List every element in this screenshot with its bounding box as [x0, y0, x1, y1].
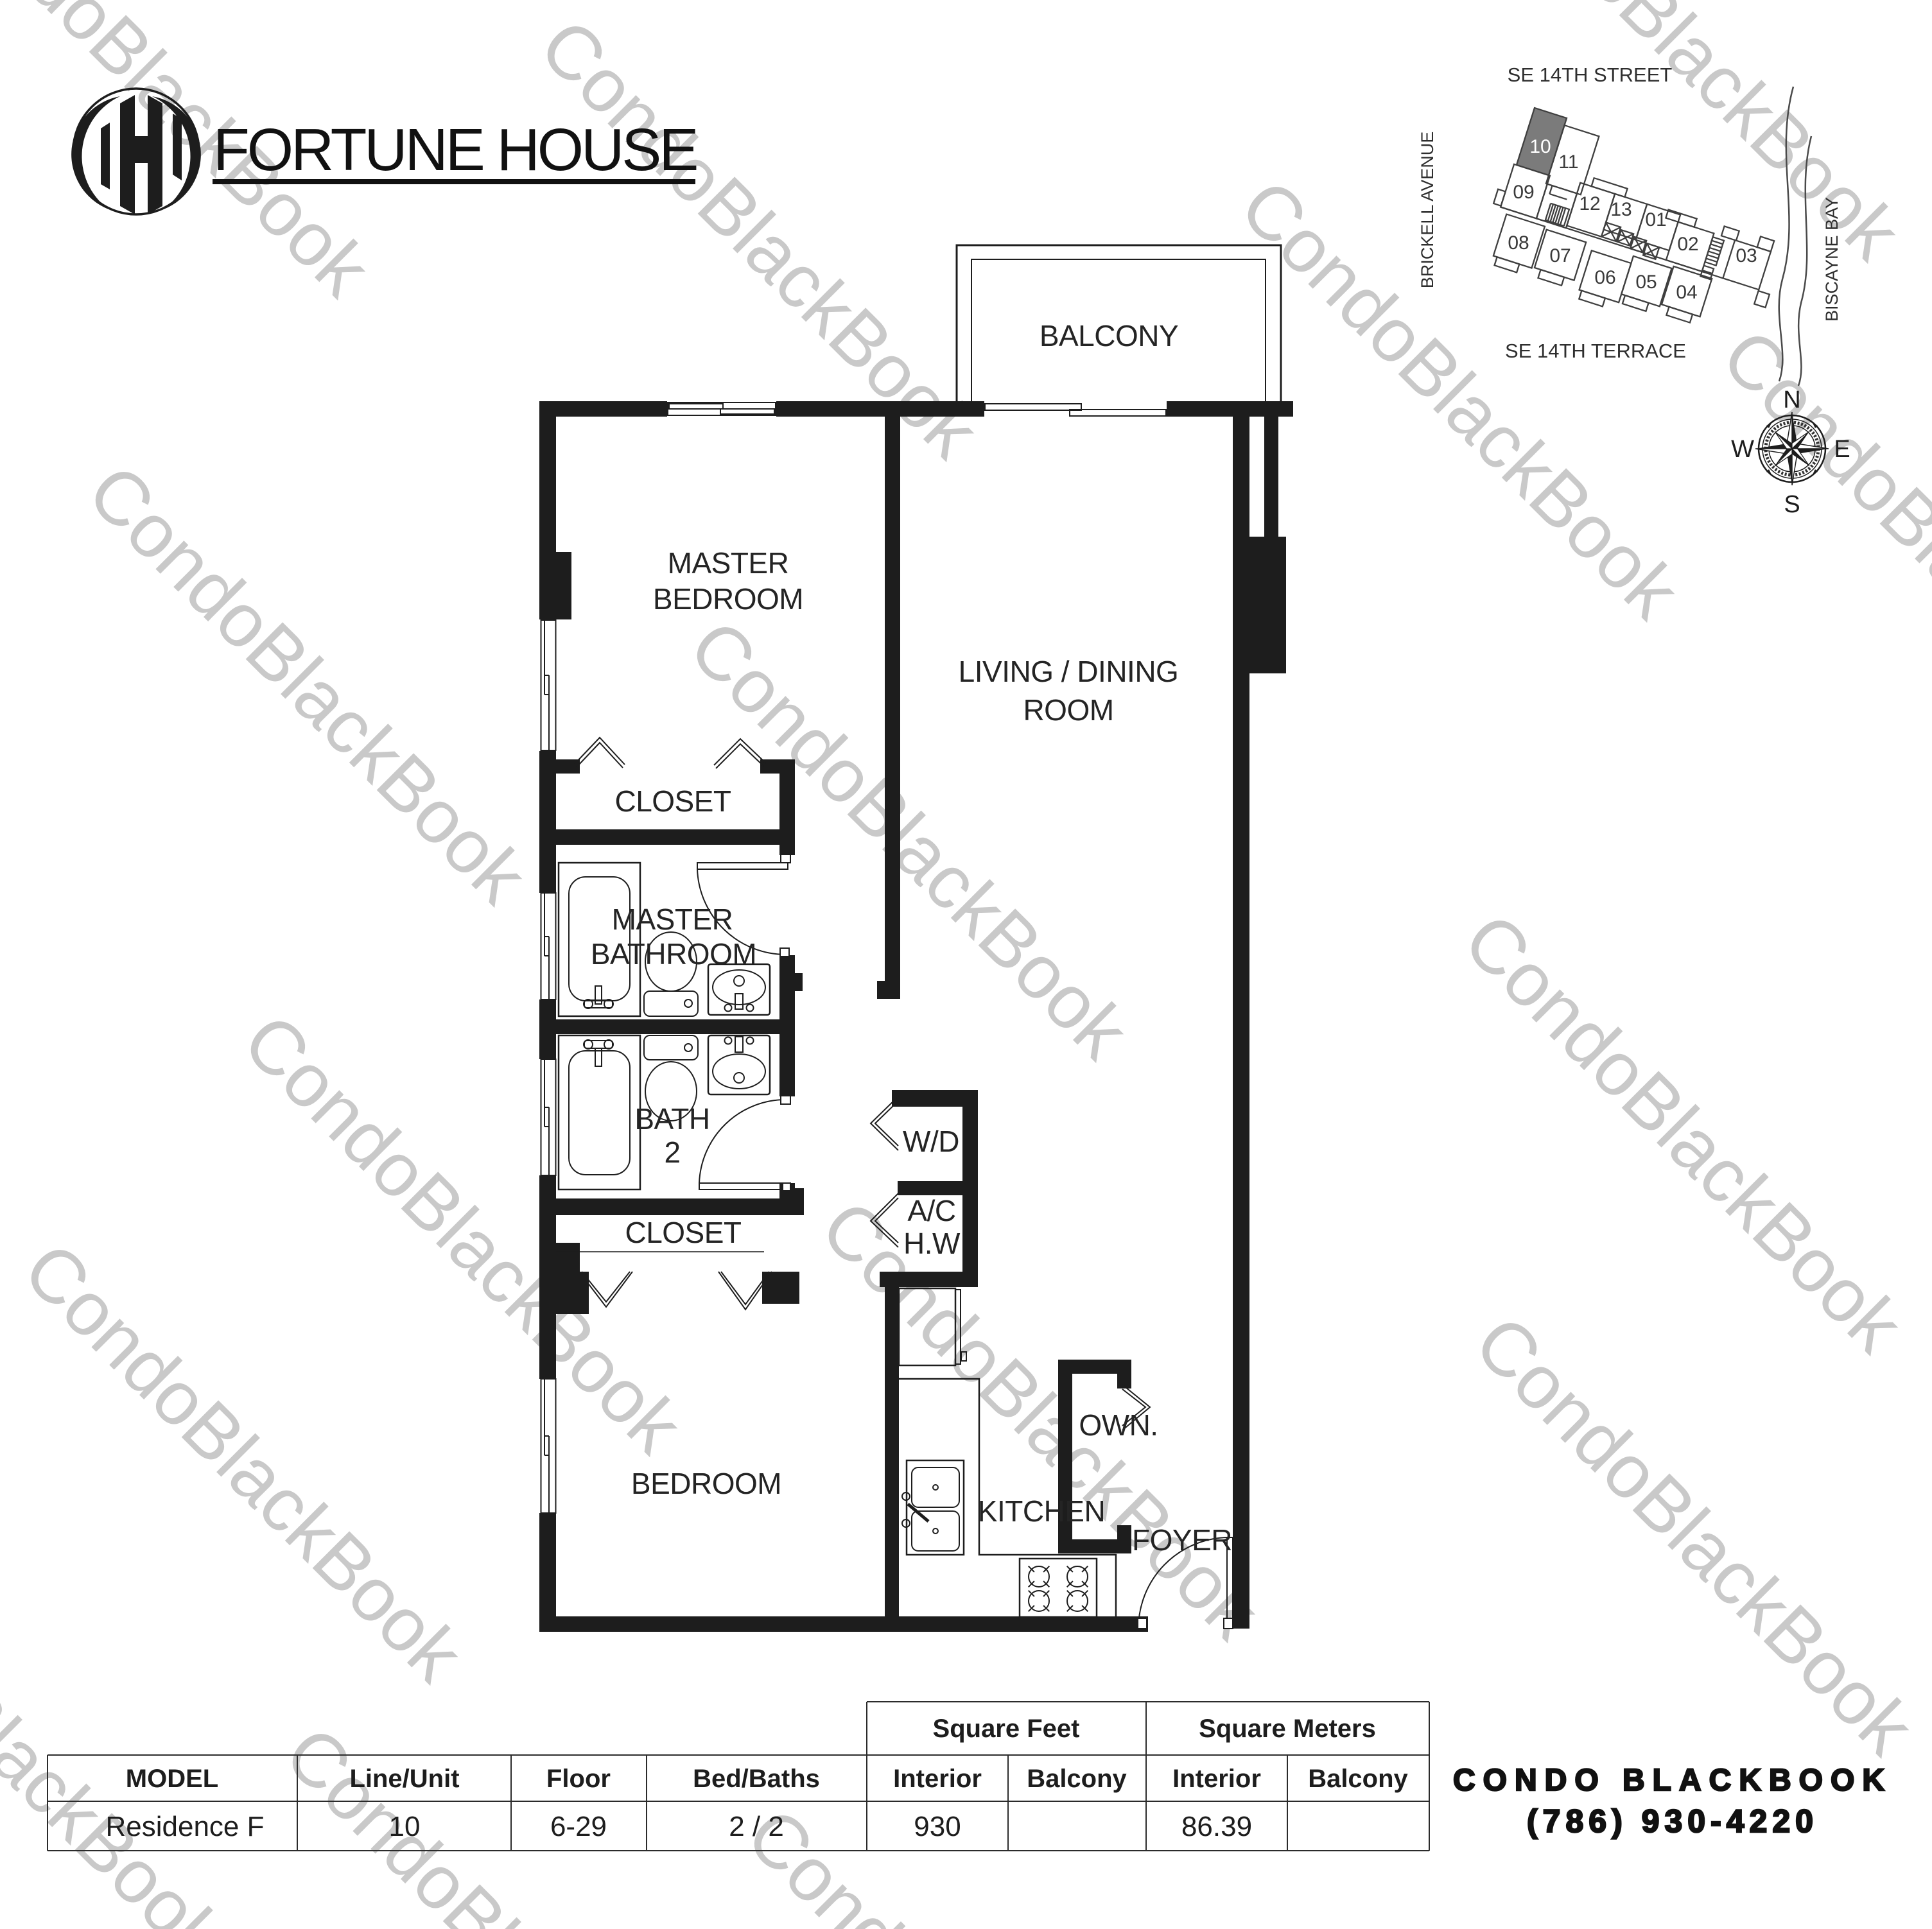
svg-text:BEDROOM: BEDROOM	[631, 1467, 781, 1500]
svg-text:6-29: 6-29	[550, 1811, 607, 1842]
svg-text:Interior: Interior	[893, 1765, 982, 1793]
svg-text:Interior: Interior	[1172, 1765, 1261, 1793]
svg-text:Square Meters: Square Meters	[1199, 1715, 1376, 1743]
svg-text:08: 08	[1508, 232, 1529, 254]
svg-text:E: E	[1834, 436, 1850, 463]
svg-text:MASTER: MASTER	[668, 546, 789, 580]
svg-text:MODEL: MODEL	[126, 1765, 218, 1793]
svg-text:BATH: BATH	[634, 1102, 709, 1136]
svg-text:2: 2	[664, 1136, 680, 1169]
svg-text:SE 14TH TERRACE: SE 14TH TERRACE	[1505, 340, 1686, 362]
svg-text:BISCAYNE BAY: BISCAYNE BAY	[1822, 197, 1841, 322]
svg-text:MASTER: MASTER	[612, 903, 733, 936]
svg-text:Square Feet: Square Feet	[933, 1715, 1080, 1743]
svg-text:N: N	[1783, 386, 1800, 413]
svg-text:12: 12	[1579, 193, 1600, 214]
svg-text:SE 14TH STREET: SE 14TH STREET	[1508, 64, 1673, 86]
svg-text:Balcony: Balcony	[1308, 1765, 1408, 1793]
svg-text:86.39: 86.39	[1181, 1811, 1252, 1842]
svg-text:13: 13	[1610, 199, 1632, 220]
svg-text:06: 06	[1594, 267, 1615, 288]
svg-text:A/C: A/C	[907, 1194, 955, 1227]
svg-text:CONDO BLACKBOOK: CONDO BLACKBOOK	[1453, 1763, 1892, 1797]
svg-text:FOYER: FOYER	[1132, 1523, 1232, 1557]
svg-text:BATHROOM: BATHROOM	[591, 937, 756, 971]
svg-text:10: 10	[1529, 136, 1551, 157]
svg-text:BEDROOM: BEDROOM	[653, 582, 803, 616]
svg-text:03: 03	[1736, 245, 1757, 266]
svg-text:Residence F: Residence F	[105, 1811, 264, 1842]
svg-text:Balcony: Balcony	[1027, 1765, 1127, 1793]
svg-text:FORTUNE HOUSE: FORTUNE HOUSE	[213, 116, 697, 183]
svg-text:05: 05	[1635, 272, 1657, 293]
svg-text:W: W	[1731, 436, 1754, 463]
svg-text:02: 02	[1677, 234, 1698, 255]
svg-text:11: 11	[1558, 151, 1578, 173]
svg-text:H.W: H.W	[903, 1227, 961, 1260]
svg-text:04: 04	[1676, 282, 1697, 303]
svg-text:BALCONY: BALCONY	[1040, 319, 1178, 352]
svg-text:CLOSET: CLOSET	[614, 784, 731, 818]
svg-text:OWN.: OWN.	[1079, 1408, 1158, 1442]
svg-text:930: 930	[914, 1811, 961, 1842]
svg-text:W/D: W/D	[903, 1125, 959, 1158]
svg-text:07: 07	[1549, 245, 1571, 266]
svg-text:10: 10	[389, 1811, 421, 1842]
svg-text:(786) 930-4220: (786) 930-4220	[1527, 1803, 1818, 1839]
svg-text:Floor: Floor	[546, 1765, 611, 1793]
svg-text:01: 01	[1645, 209, 1666, 230]
svg-text:LIVING / DINING: LIVING / DINING	[959, 655, 1179, 688]
svg-text:Bed/Baths: Bed/Baths	[693, 1765, 820, 1793]
svg-text:KITCHEN: KITCHEN	[978, 1494, 1105, 1528]
svg-text:ROOM: ROOM	[1023, 693, 1113, 727]
svg-text:Line/Unit: Line/Unit	[349, 1765, 459, 1793]
svg-text:BRICKELL AVENUE: BRICKELL AVENUE	[1418, 132, 1437, 289]
svg-text:09: 09	[1513, 182, 1534, 203]
svg-text:CLOSET: CLOSET	[625, 1216, 741, 1249]
svg-text:2 / 2: 2 / 2	[729, 1811, 784, 1842]
svg-text:S: S	[1784, 491, 1800, 518]
